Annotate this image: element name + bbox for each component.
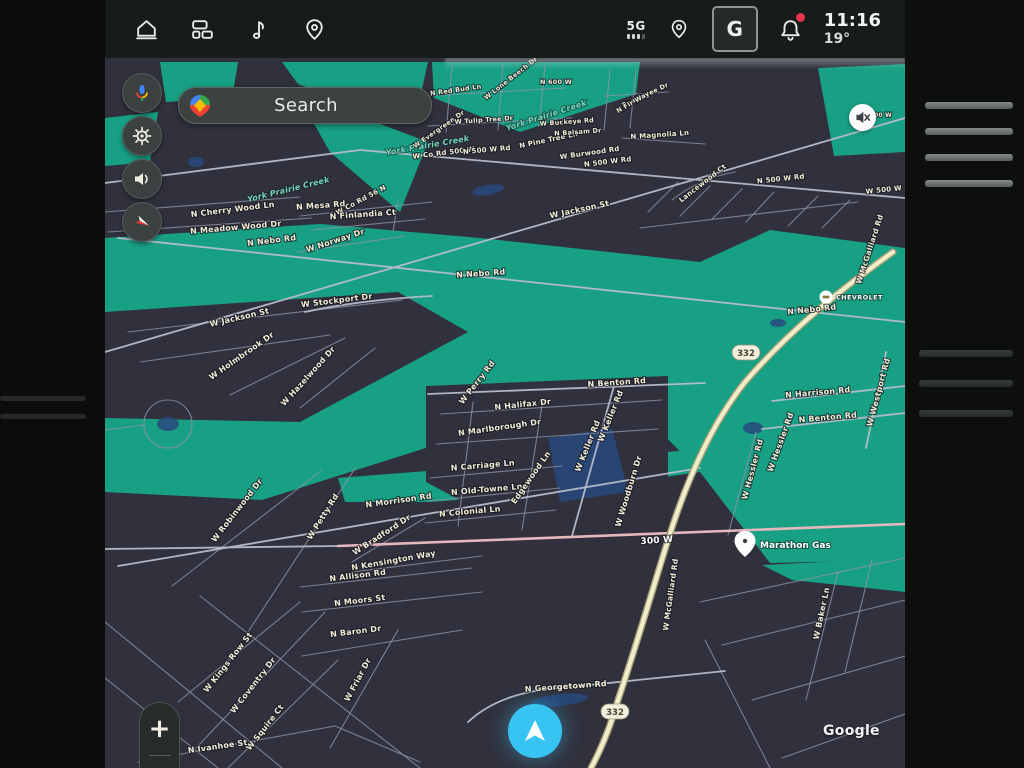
vent-slat (0, 396, 86, 401)
vent-slat (919, 350, 1013, 357)
current-location-button[interactable] (508, 704, 562, 758)
status-bar-left (105, 14, 329, 44)
water-body (157, 417, 179, 431)
time-label: 11:16 (824, 11, 881, 32)
settings-button[interactable] (122, 116, 162, 156)
vent-slat (925, 180, 1013, 187)
zoom-controls: + − (139, 702, 180, 768)
chevrolet-bowtie-icon (823, 296, 830, 299)
compass-arrow-icon (132, 212, 152, 232)
search-placeholder: Search (211, 95, 401, 116)
network-label: 5G (627, 19, 646, 33)
bezel-left (0, 0, 105, 768)
water-body (188, 157, 204, 167)
vent-slat (919, 380, 1013, 387)
temperature-label: 19° (824, 31, 850, 47)
route-shield-number: 332 (737, 349, 755, 359)
map-svg[interactable]: York Prairie CreekYork Prairie CreekYork… (105, 58, 905, 768)
mute-navigation-button[interactable] (849, 104, 876, 131)
vent-slat (925, 102, 1013, 109)
vent-slat (0, 414, 86, 419)
muted-speaker-icon (853, 108, 872, 127)
zoom-in-button[interactable]: + (140, 703, 179, 755)
clock-widget: 11:16 19° (824, 11, 881, 48)
navigation-arrow-icon (518, 714, 552, 748)
microphone-icon (132, 83, 152, 103)
profile-initial: G (726, 17, 742, 41)
profile-badge[interactable]: G (712, 6, 758, 52)
google-watermark: Google (823, 723, 880, 739)
vent-slat (925, 154, 1013, 161)
poi-label: Marathon Gas (760, 541, 831, 551)
zoom-out-button[interactable]: − (140, 756, 179, 768)
status-bar: 5G G 11:16 19° (105, 0, 905, 58)
water-body (743, 422, 763, 434)
infotainment-screen: 5G G 11:16 19° York Prairie CreekYork Pr… (0, 0, 1024, 768)
gear-icon (132, 126, 152, 146)
notification-badge (796, 13, 805, 22)
voice-search-button[interactable] (122, 73, 162, 113)
navigation-button[interactable] (122, 202, 162, 242)
signal-bars-icon (627, 34, 646, 39)
music-icon[interactable] (243, 14, 273, 44)
search-bar[interactable]: Search (178, 87, 432, 124)
map-canvas[interactable]: York Prairie CreekYork Prairie CreekYork… (105, 58, 905, 768)
google-maps-logo-icon (189, 95, 211, 117)
route-shield-number: 332 (606, 708, 624, 718)
pin-dot (743, 539, 747, 543)
bezel-right (905, 0, 1024, 768)
volume-button[interactable] (122, 159, 162, 199)
home-icon[interactable] (131, 14, 161, 44)
location-icon[interactable] (299, 14, 329, 44)
speaker-icon (132, 169, 152, 189)
app-grid-icon[interactable] (187, 14, 217, 44)
water-body (770, 319, 786, 327)
notifications-bell-icon[interactable] (776, 14, 806, 44)
poi-label: CHEVROLET (836, 294, 883, 302)
vent-slat (925, 128, 1013, 135)
status-bar-right: 5G G 11:16 19° (627, 6, 906, 52)
gps-pin-icon (664, 14, 694, 44)
network-indicator: 5G (627, 19, 646, 39)
street-label: N 600 W (540, 78, 572, 86)
vent-slat (919, 410, 1013, 417)
